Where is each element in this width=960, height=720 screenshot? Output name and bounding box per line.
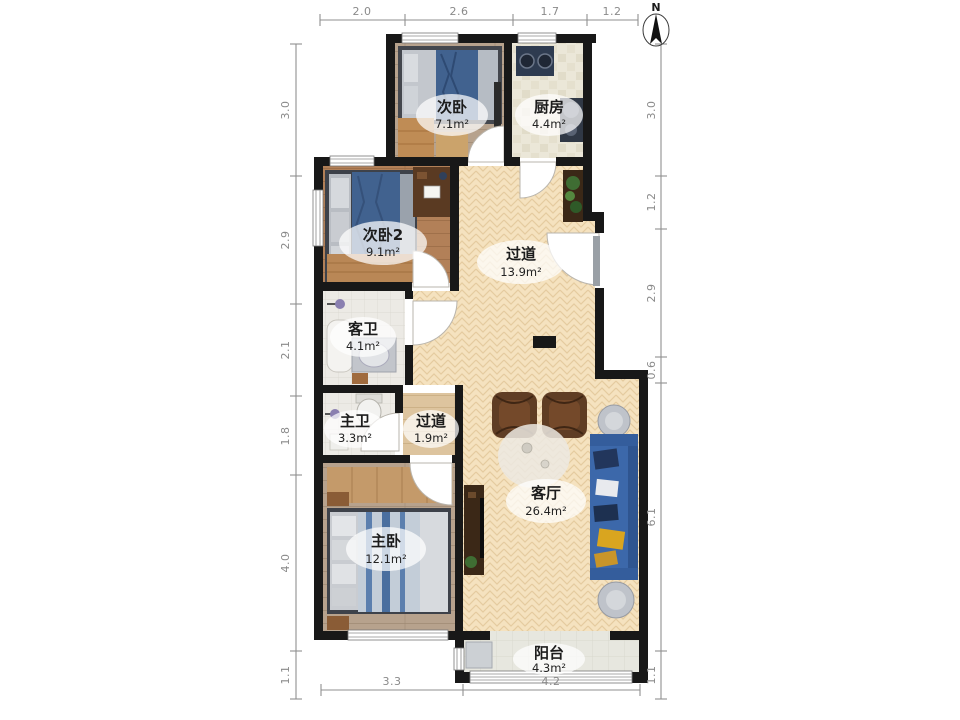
floor-plan-svg: 次卧 7.1m² 厨房 4.4m² 次卧2 9.1m² 过道 13.9m² 客卫… [0,0,960,720]
entrance-door-leaf [593,236,600,286]
dim-left-5: 4.0 [279,554,292,573]
dim-left-2: 2.9 [279,231,292,250]
dim-left-1: 3.0 [279,101,292,120]
window-second-bedroom2-left [313,190,323,246]
room-name-master-bedroom: 主卧 [371,532,401,550]
room-area-master-bath: 3.3m² [338,431,372,445]
room-label-balcony: 阳台 4.3m² [513,643,585,675]
window-kitchen [518,33,556,43]
room-name-master-bath: 主卫 [340,412,370,430]
room-label-guest-bath: 客卫 4.1m² [330,317,396,357]
room-label-living-room: 客厅 26.4m² [506,479,586,523]
nightstand-1 [327,492,349,506]
stove [516,46,554,76]
dim-bottom-2: 4.2 [542,675,561,688]
dim-top-1: 2.0 [353,5,372,18]
dim-right-1: 3.0 [645,101,658,120]
room-label-kitchen: 厨房 4.4m² [515,94,583,136]
window-master-bedroom [348,630,448,640]
dim-left-6: 1.1 [279,666,292,685]
room-name-kitchen: 厨房 [534,98,564,116]
window-second-bedroom2-top [330,156,374,166]
dim-top-3: 1.7 [541,5,560,18]
side-table-top [598,405,630,437]
room-area-kitchen: 4.4m² [532,117,566,131]
room-area-guest-bath: 4.1m² [346,339,380,353]
dim-top-4: 1.2 [603,5,622,18]
coffee-rug [498,424,570,488]
room-label-master-bath: 主卫 3.3m² [324,410,386,448]
room-label-bedroom-second: 次卧 7.1m² [416,94,488,136]
dim-right-2: 1.2 [645,193,658,212]
room-area-living-room: 26.4m² [525,504,566,518]
room-name-living-room: 客厅 [530,484,561,502]
room-label-corridor: 过道 1.9m² [403,410,459,448]
dim-right-6: 1.1 [645,666,658,685]
dim-right-4: 0.6 [645,361,658,380]
room-name-guest-bath: 客卫 [347,320,378,338]
room-area-balcony: 4.3m² [532,661,566,675]
room-name-hallway: 过道 [506,245,536,263]
dim-right-3: 2.9 [645,284,658,303]
room-area-hallway: 13.9m² [500,265,541,279]
dim-bottom-1: 3.3 [383,675,402,688]
dim-right-5: 6.1 [645,508,658,527]
room-name-balcony: 阳台 [534,644,564,662]
side-table-bottom [598,582,634,618]
nightstand-2 [327,616,349,630]
dim-left-3: 2.1 [279,341,292,360]
room-name-bedroom-second: 次卧 [437,98,467,116]
room-area-bedroom-second: 7.1m² [435,117,469,131]
room-area-bedroom-second2: 9.1m² [366,245,400,259]
window-second-bedroom [402,33,458,43]
room-area-corridor: 1.9m² [414,431,448,445]
window-balcony-left [454,648,464,670]
desk-second-bedroom2 [413,167,450,217]
tv-stand [464,485,484,575]
room-area-master-bedroom: 12.1m² [365,552,406,566]
room-name-bedroom-second2: 次卧2 [363,226,403,244]
dim-left-4: 1.8 [279,427,292,446]
washing-machine [466,642,492,668]
compass-north-label: N [651,1,660,14]
sofa [590,434,638,580]
room-name-corridor: 过道 [416,412,446,430]
dim-top-2: 2.6 [450,5,469,18]
entry-cabinet [563,170,583,222]
room-label-hallway: 过道 13.9m² [477,240,565,284]
room-label-bedroom-second2: 次卧2 9.1m² [339,221,427,265]
floorplan-screenshot: 次卧 7.1m² 厨房 4.4m² 次卧2 9.1m² 过道 13.9m² 客卫… [0,0,960,720]
room-label-master-bedroom: 主卧 12.1m² [346,527,426,571]
